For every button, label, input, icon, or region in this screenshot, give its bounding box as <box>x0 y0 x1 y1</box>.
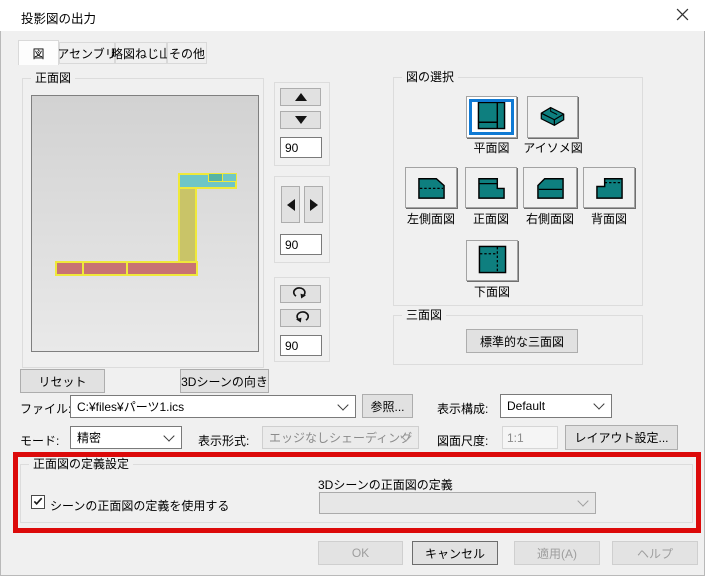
tab-assembly-label: アセンブリ <box>57 45 116 62</box>
drawing-scale-input: 1:1 <box>502 426 558 449</box>
ok-button-label: OK <box>352 546 369 560</box>
arrow-down-icon <box>295 116 307 124</box>
display-config-combo[interactable]: Default <box>500 394 612 418</box>
chevron-down-icon <box>577 495 588 506</box>
view-bottom-button[interactable] <box>466 240 518 281</box>
mode-combo[interactable]: 精密 <box>70 426 182 449</box>
cancel-button-label: キャンセル <box>425 545 485 562</box>
view-right-button[interactable] <box>523 167 577 208</box>
drawing-scale-value: 1:1 <box>507 431 524 445</box>
tab-other-label: その他 <box>169 45 205 62</box>
layout-settings-label: レイアウト設定... <box>574 429 668 446</box>
view-back-button[interactable] <box>583 167 635 208</box>
rotate-left-button[interactable] <box>281 186 300 223</box>
rotate-ccw-icon <box>292 310 310 326</box>
tab-thread[interactable]: 略図ねじ山 <box>115 42 167 64</box>
view-iso-button[interactable] <box>527 96 578 138</box>
tab-assembly[interactable]: アセンブリ <box>59 42 115 64</box>
scene-front-definition-label: 3Dシーンの正面図の定義 <box>318 476 453 493</box>
view-back-label: 背面図 <box>583 210 635 227</box>
updown-angle-input[interactable]: 90 <box>280 137 322 158</box>
chevron-down-icon <box>593 398 604 409</box>
view-right-label: 右側面図 <box>517 210 583 227</box>
display-config-label: 表示構成: <box>437 400 488 417</box>
scene-orientation-button[interactable]: 3Dシーンの向き <box>180 369 269 393</box>
arrow-left-icon <box>287 199 295 211</box>
preview-part-web <box>178 187 197 263</box>
ok-button[interactable]: OK <box>318 541 403 565</box>
three-view-group-title: 三面図 <box>402 307 446 323</box>
front-view-group-title: 正面図 <box>31 70 75 86</box>
preview-base-divider-2 <box>126 262 128 275</box>
bottom-view-icon <box>478 245 507 277</box>
standard-three-view-button[interactable]: 標準的な三面図 <box>466 329 578 353</box>
chevron-down-icon <box>163 430 174 441</box>
top-view-icon <box>477 101 506 133</box>
help-button-label: ヘルプ <box>637 545 673 562</box>
display-style-combo: エッジなしシェーディング <box>262 426 419 449</box>
view-front-label: 正面図 <box>465 210 517 227</box>
mode-label: モード: <box>20 432 59 449</box>
browse-button[interactable]: 参照... <box>362 394 413 418</box>
apply-button[interactable]: 適用(A) <box>514 541 600 565</box>
leftright-angle-value: 90 <box>285 238 298 252</box>
tab-zu[interactable]: 図 <box>18 40 59 65</box>
rotate-ccw-button[interactable] <box>280 309 321 327</box>
rotate-down-button[interactable] <box>280 111 321 129</box>
iso-view-icon <box>537 102 568 133</box>
display-style-label: 表示形式: <box>198 432 249 449</box>
back-view-icon <box>595 172 624 204</box>
reset-button-label: リセット <box>38 373 86 390</box>
rotate-cw-icon <box>292 286 310 302</box>
rotate-right-button[interactable] <box>304 186 323 223</box>
checkbox-check-icon <box>32 495 44 510</box>
chevron-down-icon <box>337 399 348 410</box>
file-combo-value: C:¥files¥パーツ1.ics <box>77 398 184 415</box>
preview-base-divider-1 <box>82 262 84 275</box>
browse-button-label: 参照... <box>370 398 404 415</box>
apply-button-label: 適用(A) <box>537 545 577 562</box>
tab-thread-label: 略図ねじ山 <box>111 45 171 62</box>
file-combo[interactable]: C:¥files¥パーツ1.ics <box>70 395 356 418</box>
rotate-up-button[interactable] <box>280 88 321 106</box>
dialog-title: 投影図の出力 <box>21 8 96 27</box>
rotate-cw-button[interactable] <box>280 285 321 303</box>
leftright-angle-input[interactable]: 90 <box>280 234 322 255</box>
left-view-icon <box>417 172 446 204</box>
close-icon <box>676 8 689 24</box>
roll-angle-input[interactable]: 90 <box>280 335 322 356</box>
projection-output-dialog: 投影図の出力 図 アセンブリ 略図ねじ山 その他 正面図 90 <box>0 0 705 576</box>
standard-three-view-label: 標準的な三面図 <box>480 333 564 350</box>
drawing-scale-label: 図面尺度: <box>437 432 488 449</box>
updown-angle-value: 90 <box>285 141 298 155</box>
reset-button[interactable]: リセット <box>20 369 105 393</box>
help-button[interactable]: ヘルプ <box>612 541 698 565</box>
cancel-button[interactable]: キャンセル <box>412 541 498 565</box>
title-bar <box>0 0 705 31</box>
view-left-button[interactable] <box>405 167 457 208</box>
preview-canvas <box>31 95 259 352</box>
view-top-button[interactable] <box>466 96 517 138</box>
layout-settings-button[interactable]: レイアウト設定... <box>565 425 678 450</box>
view-selection-group-title: 図の選択 <box>402 69 458 85</box>
scene-orientation-label: 3Dシーンの向き <box>181 373 268 390</box>
arrow-right-icon <box>310 199 318 211</box>
use-scene-front-label: シーンの正面図の定義を使用する <box>50 497 229 514</box>
close-button[interactable] <box>659 0 705 31</box>
display-config-value: Default <box>507 399 545 413</box>
front-definition-group-title: 正面図の定義設定 <box>29 456 133 472</box>
scene-front-definition-combo <box>319 492 596 514</box>
mode-combo-value: 精密 <box>77 429 101 446</box>
tab-zu-label: 図 <box>32 45 44 62</box>
preview-part-top-cell <box>222 173 237 182</box>
view-front-button[interactable] <box>465 167 517 208</box>
view-iso-label: アイソメ図 <box>518 139 588 156</box>
tab-other[interactable]: その他 <box>167 42 207 64</box>
display-style-value: エッジなしシェーディング <box>269 429 412 446</box>
file-label: ファイル: <box>20 400 71 417</box>
front-view-icon <box>477 172 506 204</box>
roll-angle-value: 90 <box>285 339 298 353</box>
arrow-up-icon <box>295 93 307 101</box>
view-top-label: 平面図 <box>460 139 523 156</box>
right-view-icon <box>536 172 565 204</box>
view-bottom-label: 下面図 <box>466 283 518 300</box>
view-left-label: 左側面図 <box>398 210 464 227</box>
use-scene-front-checkbox[interactable] <box>31 495 45 509</box>
